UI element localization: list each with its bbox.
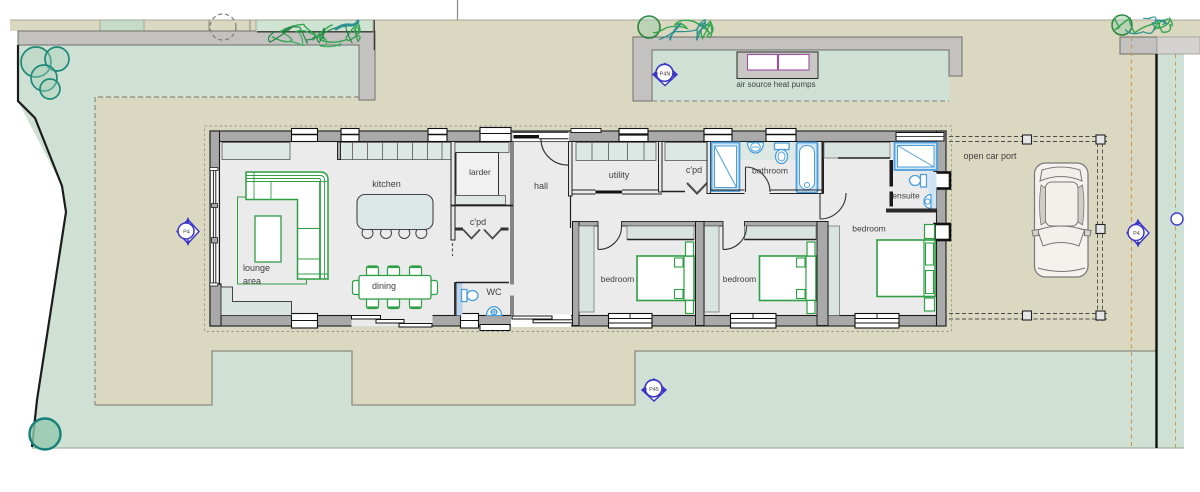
svg-text:open car port: open car port — [963, 151, 1017, 161]
svg-text:kitchen: kitchen — [372, 179, 401, 189]
svg-text:P4: P4 — [1133, 231, 1140, 237]
svg-text:c'pd: c'pd — [470, 217, 486, 227]
svg-text:WC: WC — [487, 287, 502, 297]
svg-text:bedroom: bedroom — [723, 274, 757, 284]
svg-text:c'pd: c'pd — [686, 165, 702, 175]
svg-text:utility: utility — [609, 170, 630, 180]
svg-text:bedroom: bedroom — [601, 274, 635, 284]
svg-text:area: area — [243, 276, 261, 286]
svg-text:ensuite: ensuite — [892, 191, 920, 201]
svg-text:P45: P45 — [649, 387, 659, 393]
svg-text:P4: P4 — [183, 230, 190, 236]
svg-text:dining: dining — [372, 281, 396, 291]
svg-text:air source heat pumps: air source heat pumps — [736, 80, 815, 89]
svg-text:P4N: P4N — [660, 72, 671, 78]
svg-text:larder: larder — [469, 167, 491, 177]
svg-text:hall: hall — [534, 181, 548, 191]
svg-text:lounge: lounge — [243, 263, 270, 273]
svg-text:bedroom: bedroom — [852, 224, 886, 234]
